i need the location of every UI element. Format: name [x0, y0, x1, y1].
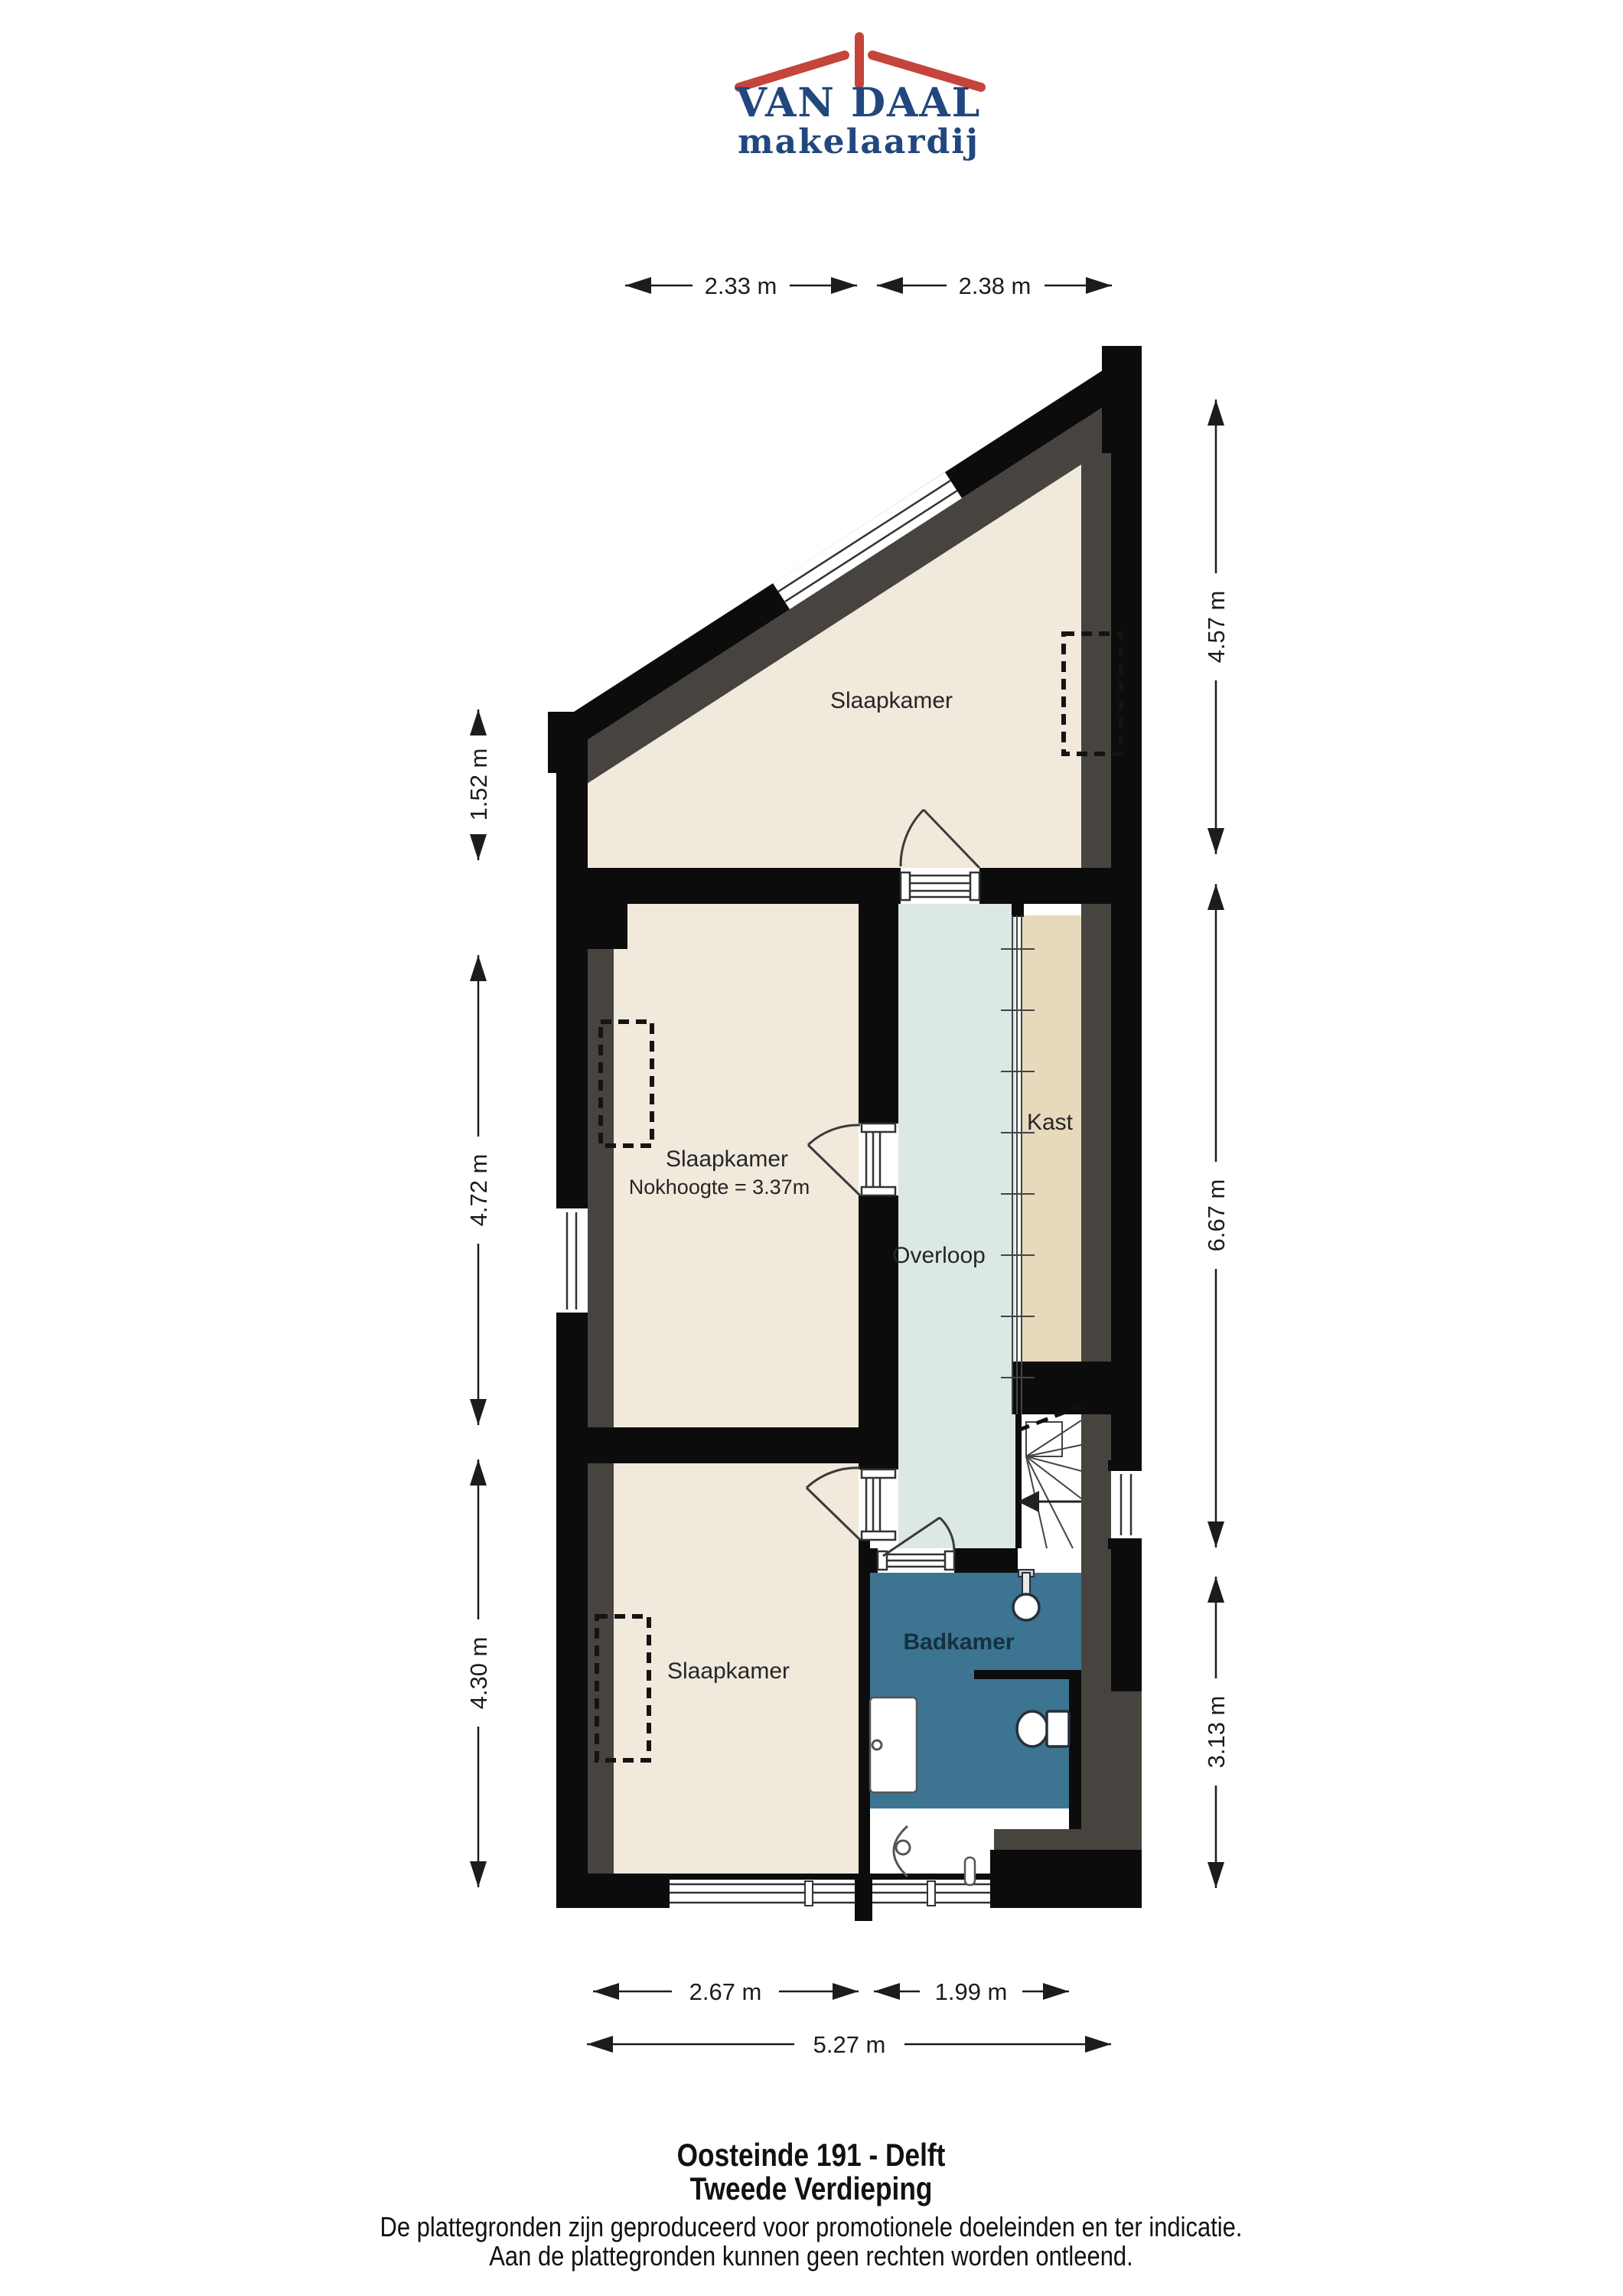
wall-stairs-stringer [1015, 1414, 1022, 1548]
left-window [556, 1208, 588, 1313]
room-label-ridge-height: Nokhoogte = 3.37m [629, 1176, 810, 1199]
wall-bathroom-east [1069, 1679, 1081, 1829]
right-window [1111, 1471, 1142, 1538]
door-bathroom-panel [878, 1551, 954, 1570]
gray-left-bottom [588, 1463, 614, 1875]
dim-label-left-1: 1.52 m [465, 748, 492, 821]
dim-label-top-2: 2.38 m [959, 272, 1031, 299]
bottom-window-mullion [927, 1881, 935, 1906]
dim-label-right-1: 4.57 m [1203, 591, 1230, 664]
room-label-bedroom-top: Slaapkamer [830, 688, 953, 713]
dim-label-right-3: 3.13 m [1203, 1696, 1230, 1769]
dim-left-3: 4.30 m [465, 1459, 492, 1887]
wall-divider-bedrooms [556, 1427, 859, 1463]
address-title: Oosteinde 191 - Delft [677, 2138, 946, 2174]
dim-label-bottom-2: 1.99 m [935, 1978, 1008, 2005]
dim-label-bottom-3: 5.27 m [813, 2031, 886, 2058]
gray-bottom-right [994, 1829, 1081, 1850]
wall-bedroom-bottom-east [859, 1540, 870, 1875]
dim-left-1: 1.52 m [465, 709, 492, 860]
logo-subtitle-text: makelaardij [738, 122, 979, 161]
gray-right-strip [1081, 413, 1111, 1668]
toilet-bowl [1017, 1711, 1048, 1746]
bottom-window-mullion [805, 1881, 813, 1906]
radiator [965, 1857, 975, 1885]
logo: VAN DAAL makelaardij [735, 37, 982, 161]
room-label-landing: Overloop [892, 1243, 986, 1268]
dim-bottom-2: 1.99 m [874, 1978, 1069, 2005]
wall-bottom-pier [855, 1874, 872, 1921]
dim-bottom-3: 5.27 m [587, 2031, 1111, 2058]
title-block: Oosteinde 191 - Delft Tweede Verdieping … [380, 2138, 1243, 2272]
dim-left-2: 4.72 m [465, 955, 492, 1425]
floor-closet [1022, 915, 1081, 1362]
dim-label-left-3: 4.30 m [465, 1637, 492, 1710]
wall-toilet-stub [974, 1670, 1081, 1679]
door-top-bedroom-opening [901, 868, 979, 904]
floorplan-canvas: VAN DAAL makelaardij [0, 0, 1623, 2296]
wall-closet-stub [1012, 904, 1024, 917]
disclaimer-line-2: Aan de plattegronden kunnen geen rechten… [489, 2242, 1133, 2272]
dim-right-3: 3.13 m [1203, 1577, 1230, 1888]
dim-label-top-1: 2.33 m [705, 272, 777, 299]
toilet-tank [1047, 1711, 1069, 1746]
cap-left-window-top [556, 1198, 588, 1208]
floor-stairs [1022, 1414, 1081, 1548]
wall-landing-south-a [870, 1548, 878, 1573]
wall-left-upper [556, 722, 588, 1207]
logo-brand-text: VAN DAAL [735, 80, 982, 126]
dim-label-bottom-1: 2.67 m [689, 1978, 762, 2005]
floor-landing [898, 904, 1015, 1548]
dim-label-right-2: 6.67 m [1203, 1179, 1230, 1252]
floorplan-page: VAN DAAL makelaardij [0, 0, 1623, 2296]
dim-right-1: 4.57 m [1203, 400, 1230, 854]
wall-bottom-left [556, 1874, 670, 1908]
room-label-bedroom-bottom: Slaapkamer [667, 1658, 790, 1684]
disclaimer-line-1: De plattegronden zijn geproduceerd voor … [380, 2213, 1243, 2243]
wall-bottom-right [990, 1850, 1142, 1908]
sink-basin [1013, 1594, 1039, 1620]
wall-left-lower [556, 1314, 588, 1908]
wall-landing-south-b [954, 1548, 1018, 1573]
wall-divider-top-right [979, 868, 1111, 904]
floor-title: Tweede Verdieping [690, 2171, 933, 2207]
gray-right-lower [1081, 1668, 1142, 1850]
dim-top-2: 2.38 m [877, 272, 1112, 299]
room-label-closet: Kast [1027, 1110, 1074, 1135]
dim-top-1: 2.33 m [625, 272, 857, 299]
wall-landing-west-1 [859, 904, 898, 1124]
wall-stairs-top [1012, 1362, 1111, 1414]
wall-divider-top-left [556, 868, 901, 904]
shower-tray [870, 1698, 917, 1792]
dim-label-left-2: 4.72 m [465, 1154, 492, 1227]
wall-left-corner-chunk [588, 904, 627, 949]
cap-right-window-bottom [1108, 1538, 1142, 1549]
dim-bottom-1: 2.67 m [593, 1978, 859, 2005]
wall-bottom-inner-edge [670, 1874, 990, 1880]
room-label-bathroom: Badkamer [903, 1629, 1014, 1655]
door-bottom-bedroom-opening [859, 1469, 898, 1540]
room-label-bedroom-middle: Slaapkamer [666, 1146, 788, 1172]
wall-landing-west-2 [859, 1195, 898, 1469]
cap-left-window-bottom [556, 1313, 588, 1323]
door-middle-bedroom-opening [859, 1124, 898, 1195]
dim-right-2: 6.67 m [1203, 884, 1230, 1548]
cap-right-window-top [1108, 1460, 1142, 1471]
